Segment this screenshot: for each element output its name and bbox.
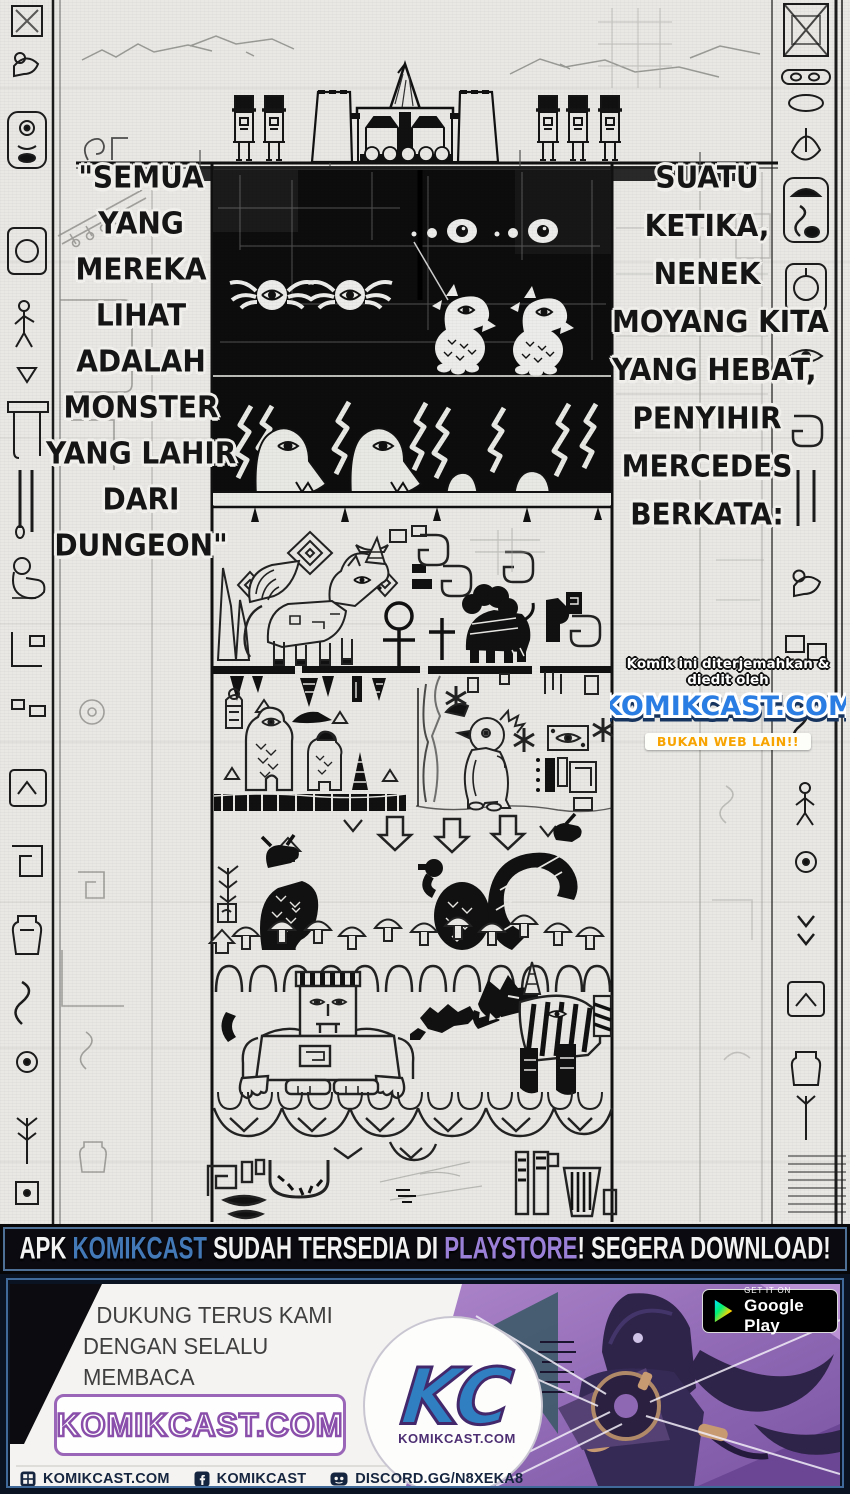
speech-line: KETIKA, — [612, 202, 802, 250]
speech-line: ADALAH — [46, 338, 236, 384]
social-label: KOMIKCAST.COM — [43, 1471, 170, 1486]
svg-text:KOMIKCAST.COM: KOMIKCAST.COM — [610, 691, 846, 722]
play-badge-line2: Google Play — [744, 1296, 837, 1336]
speech-line: DARI — [46, 477, 236, 523]
facebook-icon — [194, 1471, 210, 1486]
manga-page: "SEMUA YANG MEREKA LIHAT ADALAH MONSTER … — [0, 0, 850, 1494]
speech-line: YANG HEBAT, — [612, 346, 802, 394]
speech-line: MONSTER — [46, 385, 236, 431]
speech-line: LIHAT — [46, 292, 236, 338]
watermark-tagline-badge: BUKAN WEB LAIN!! — [645, 733, 811, 750]
speech-line: MOYANG KITA — [612, 298, 802, 346]
banner-seg-komikcast: KOMIKCAST — [72, 1231, 206, 1265]
speech-line: BERKATA: — [612, 490, 802, 538]
translator-watermark: Komik ini diterjemahkan & diedit oleh KO… — [610, 656, 846, 751]
social-item-discord[interactable]: DISCORD.GG/N8XEKA8 — [330, 1471, 523, 1486]
speech-line: MEREKA — [46, 246, 236, 292]
speech-line: "SEMUA — [46, 154, 236, 200]
social-bar: KOMIKCAST.COM KOMIKCAST DISCORD.GG/ — [20, 1466, 523, 1486]
social-label: KOMIKCAST — [217, 1471, 307, 1486]
speech-line: YANG LAHIR — [46, 431, 236, 477]
play-store-icon — [713, 1298, 735, 1324]
banner-seg-end: ! SEGERA DOWNLOAD! — [577, 1231, 830, 1265]
dark-panel — [213, 170, 611, 505]
discord-icon — [330, 1471, 348, 1486]
banner-seg-apk: APK — [19, 1231, 72, 1265]
social-item-facebook[interactable]: KOMIKCAST — [194, 1471, 307, 1486]
apk-promo-banner[interactable]: APK KOMIKCAST SUDAH TERSEDIA DI PLAYSTOR… — [0, 1224, 850, 1274]
speech-line: DUNGEON" — [46, 523, 236, 569]
social-item-website[interactable]: KOMIKCAST.COM — [20, 1471, 170, 1486]
speech-bubble-left: "SEMUA YANG MEREKA LIHAT ADALAH MONSTER … — [46, 154, 236, 568]
apk-promo-banner-inner: APK KOMIKCAST SUDAH TERSEDIA DI PLAYSTOR… — [3, 1227, 847, 1271]
support-line: DENGAN SELALU MEMBACA — [58, 1331, 356, 1393]
play-badge-line1: GET IT ON — [744, 1286, 837, 1295]
banner-seg-playstore: PLAYSTORE — [444, 1231, 577, 1265]
speech-line: NENEK — [612, 250, 802, 298]
social-label: DISCORD.GG/N8XEKA8 — [355, 1471, 523, 1486]
google-play-badge[interactable]: GET IT ON Google Play — [702, 1289, 838, 1333]
speech-line: MERCEDES — [612, 442, 802, 490]
speech-line: YANG — [46, 200, 236, 246]
speech-bubble-right: SUATU KETIKA, NENEK MOYANG KITA YANG HEB… — [612, 153, 802, 538]
watermark-credit: Komik ini diterjemahkan & diedit oleh — [610, 656, 846, 688]
apk-promo-text: APK KOMIKCAST SUDAH TERSEDIA DI PLAYSTOR… — [19, 1231, 830, 1266]
speech-line: PENYIHIR — [612, 394, 802, 442]
banner-seg-mid: SUDAH TERSEDIA DI — [207, 1231, 444, 1265]
komikcast-site-box[interactable]: KOMIKCAST.COM — [54, 1394, 346, 1456]
footer-promo: DUKUNG TERUS KAMI DENGAN SELALU MEMBACA … — [0, 1274, 850, 1494]
website-icon — [20, 1471, 36, 1486]
speech-line: SUATU — [612, 153, 802, 201]
support-line: DUKUNG TERUS KAMI — [58, 1300, 356, 1331]
footer-content: DUKUNG TERUS KAMI DENGAN SELALU MEMBACA … — [10, 1284, 840, 1486]
komikcast-site-label: KOMIKCAST.COM — [57, 1407, 344, 1444]
watermark-site-logo: KOMIKCAST.COM KOMIKCAST.COM — [610, 688, 846, 726]
